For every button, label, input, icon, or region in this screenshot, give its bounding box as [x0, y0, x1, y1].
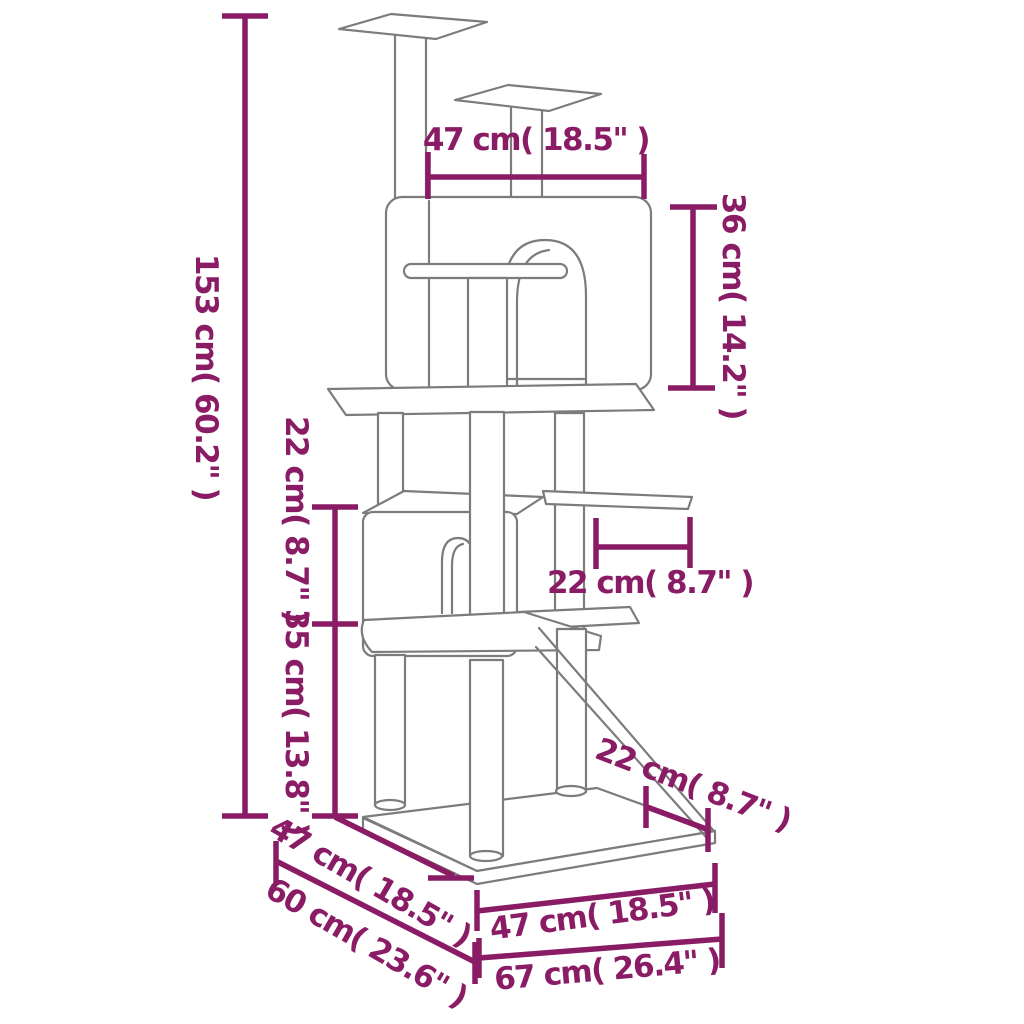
dim-line-condo-height: [668, 207, 717, 388]
dim-label-condo-height: 36 cm( 14.2" ): [715, 193, 751, 419]
centre-post-mid: [470, 412, 504, 625]
dim-label-total-height: 153 cm( 60.2" ): [188, 254, 224, 500]
dim-line-side-platform: [596, 517, 690, 569]
dim-line-upper-lower-sections: [312, 507, 358, 816]
centre-floor-post: [470, 660, 503, 856]
top-post-1: [395, 24, 426, 198]
dim-label-top-platform-width: 47 cm( 18.5" ): [423, 122, 649, 158]
dim-line-total-height: [222, 16, 268, 816]
front-shelf: [404, 264, 567, 278]
top-platform-2: [455, 85, 601, 111]
dim-label-upper-section-height: 22 cm( 8.7" ): [278, 416, 314, 622]
centre-floor-post-cap: [470, 851, 502, 861]
left-floor-post-cap: [375, 800, 405, 810]
left-floor-post: [375, 655, 405, 805]
dim-label-side-platform: 22 cm( 8.7" ): [547, 565, 753, 601]
middle-platform: [328, 384, 654, 415]
dim-label-lower-section-height: 35 cm( 13.8" ): [278, 609, 314, 835]
front-shelf-post: [468, 278, 507, 399]
top-platform-1: [339, 14, 487, 39]
rear-floor-post-cap: [556, 786, 586, 796]
product-dimension-diagram: 153 cm( 60.2" ) 47 cm( 18.5" ) 36 cm( 14…: [0, 0, 1024, 1024]
dim-label-base-front-width: 47 cm( 18.5" ): [488, 882, 717, 947]
